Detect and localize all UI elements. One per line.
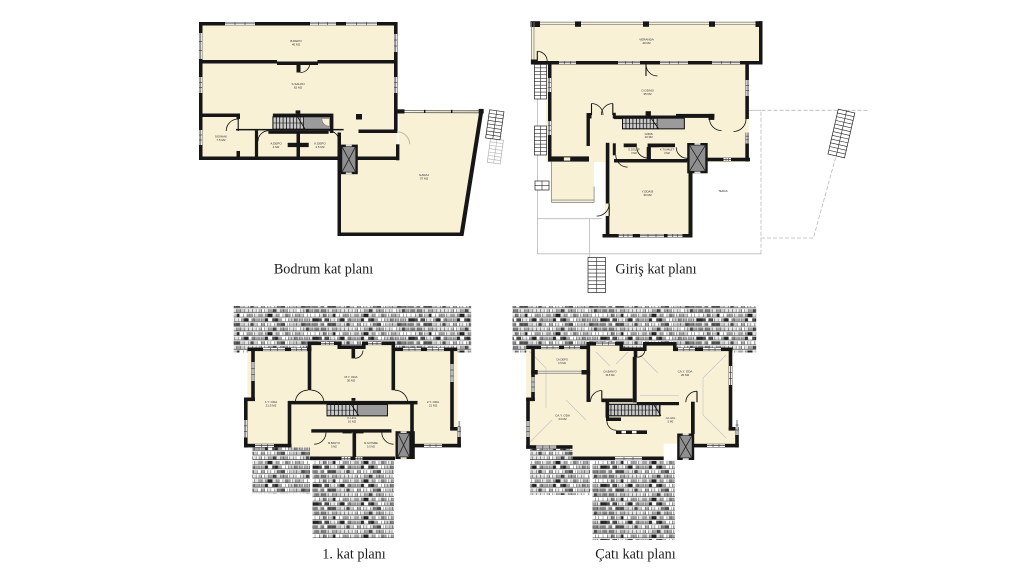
svg-text:37 M2: 37 M2: [420, 176, 429, 180]
svg-text:CA.DEPO: CA.DEPO: [556, 358, 568, 362]
svg-text:10.5 M2: 10.5 M2: [605, 373, 615, 377]
svg-text:30 M2: 30 M2: [347, 378, 356, 382]
svg-text:Giriş kat planı: Giriş kat planı: [615, 262, 696, 278]
svg-text:K.TUVALET: K.TUVALET: [660, 148, 674, 152]
svg-text:CA.HOL: CA.HOL: [666, 416, 676, 420]
svg-text:4.5 M2: 4.5 M2: [315, 145, 325, 149]
svg-text:40 M2: 40 M2: [642, 41, 651, 45]
svg-text:5 M2: 5 M2: [668, 419, 674, 423]
svg-text:5.5 M2: 5.5 M2: [367, 444, 375, 448]
svg-text:3 M2: 3 M2: [664, 151, 670, 155]
svg-text:G.DOLAP: G.DOLAP: [628, 148, 640, 152]
svg-text:M.GIYINME: M.GIYINME: [364, 441, 378, 445]
svg-text:21.5 M2: 21.5 M2: [266, 403, 277, 407]
svg-text:35 M2: 35 M2: [643, 92, 652, 96]
svg-text:5 M2: 5 M2: [331, 444, 337, 448]
svg-text:10 M2: 10 M2: [645, 135, 654, 139]
svg-text:30 M2: 30 M2: [643, 193, 652, 197]
svg-text:CA.BANYO: CA.BANYO: [603, 370, 616, 374]
svg-text:1. kat planı: 1. kat planı: [322, 547, 385, 563]
svg-text:24 M2: 24 M2: [558, 417, 567, 421]
svg-text:4.5 M2: 4.5 M2: [558, 361, 566, 365]
svg-text:10 M2: 10 M2: [348, 419, 357, 423]
svg-text:4 M2: 4 M2: [273, 145, 280, 149]
svg-text:Bodrum kat planı: Bodrum kat planı: [274, 262, 373, 278]
svg-text:TERAS: TERAS: [718, 189, 727, 193]
svg-text:Çatı katı planı: Çatı katı planı: [595, 547, 675, 563]
svg-text:26 M2: 26 M2: [681, 373, 690, 377]
svg-text:40 M2: 40 M2: [292, 42, 301, 46]
svg-text:3 M2: 3 M2: [631, 151, 637, 155]
svg-text:21 M2: 21 M2: [429, 403, 438, 407]
svg-text:62 M2: 62 M2: [294, 85, 303, 89]
svg-text:M.BANYO: M.BANYO: [328, 441, 340, 445]
svg-text:7.5 M2: 7.5 M2: [216, 138, 226, 142]
